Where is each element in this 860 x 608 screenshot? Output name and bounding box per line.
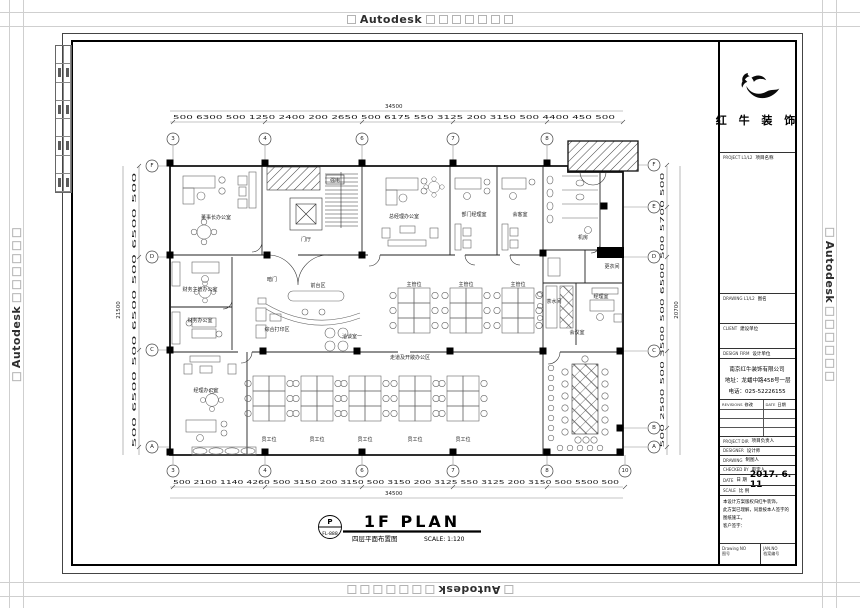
svg-text:B: B [652,425,656,431]
room-label-staff: 员工位 [261,436,276,443]
stamp-number: FL-888 [322,531,338,537]
room-label-lobby: 门厅 [301,236,311,243]
sheet-title: P FL-888 1F PLAN 四层平面布置图 SCALE: 1:120 [319,512,482,543]
room-label-print-zone: 综合打印区 [264,326,289,333]
dim-total-top: 34500 [385,104,403,110]
stair-landing-hatch [267,167,320,190]
room-label-supervisor: 主管位 [510,281,525,288]
drawing-name-space [720,303,795,323]
elevator-x [296,204,316,224]
stair-elevator-core [267,167,358,230]
room-label-finance: 财务办公室 [187,317,212,324]
dims-right: 500 2500 500 3500 500 6500 500 5700 500 [660,171,666,447]
room-label-talk-room: 洽谈室一 [342,333,362,340]
design-firm-row: DESIGN FIRM 设计单位 [720,348,795,358]
svg-text:3: 3 [171,136,175,142]
date-row: DATE 日 期 2017. 6. 11 [720,474,795,485]
title-block: 红 牛 装 饰 PROJECT L1/L2 项目名称 DRAWING L1/L2… [718,42,795,564]
room-label-meeting: 会议室 [569,329,584,336]
dim-total-left: 21500 [116,301,122,319]
svg-text:D: D [652,254,656,260]
designer-row: DESIGNER 设计师 [720,446,795,456]
room-label-supervisor: 主管位 [406,281,421,288]
room-label-manager2: 经理室 [593,293,608,300]
scale-row: SCALE 比 例 [720,485,795,495]
room-label-staff: 员工位 [455,436,470,443]
svg-text:F: F [652,162,655,168]
project-name-space [720,162,795,293]
company-name: 南京红牛装饰有限公司 [730,364,785,372]
room-label-staff: 员工位 [407,436,422,443]
door-arcs [223,172,606,364]
plan-title: 1F PLAN [364,512,460,531]
room-label-chairman: 董事长办公室 [201,214,231,221]
room-label-finance-mgr: 财务主管办公室 [182,286,217,293]
client-row: CLIENT 建设单位 [720,323,795,333]
svg-text:3: 3 [171,468,175,474]
plan-scale: SCALE: 1:120 [424,536,465,543]
room-label-hidden-door: 暗门 [267,276,277,283]
room-label-manager: 经理办公室 [193,387,218,394]
stamp-letter: P [327,518,332,526]
svg-text:7: 7 [451,136,455,142]
structural-columns [167,160,625,456]
company-info: 南京红牛装饰有限公司 地址：龙蟠中路458号一层 电话：025-52226155 [720,358,795,399]
svg-text:C: C [652,348,656,354]
svg-text:10: 10 [622,468,629,474]
room-label-front-desk: 前台区 [310,282,325,289]
redbull-logo-icon [735,66,781,106]
revisions-table: REVISIONS修改 DATE日期 [720,399,795,436]
dim-total-bottom: 34500 [385,491,403,497]
room-label-corridor: 走道及开敞办公区 [390,354,430,361]
cad-sheet-page: Autodesk Autodesk Autodesk Autodesk [0,0,860,608]
company-address: 地址：龙蟠中路458号一层 [725,375,791,383]
svg-text:A: A [652,444,656,450]
drawing-name-row: DRAWING L1/L2 图名 [720,293,795,303]
dims-top: 500 6300 500 1250 2400 200 2650 500 6175… [173,115,616,121]
svg-text:E: E [652,204,656,210]
room-label-gm: 总经理办公室 [389,213,419,220]
svg-text:F: F [150,163,153,169]
project-dir-row: PROJECT DIR 项目负责人 [720,436,795,446]
room-label-power: 强电 [330,177,340,184]
svg-text:6: 6 [360,468,364,474]
svg-text:8: 8 [545,468,549,474]
room-label-supervisor: 主管位 [458,281,473,288]
svg-text:4: 4 [263,136,267,142]
room-label-pantry: 茶水间 [546,298,561,305]
svg-text:A: A [150,444,154,450]
room-label-guest: 会客室 [512,211,527,218]
dims-left: 500 6500 500 6500 500 6500 500 [132,171,138,447]
locker-wall-block [597,247,624,258]
client-space [720,333,795,348]
archive-no-cell: JAN.NO 档案编号 [761,544,795,564]
svg-text:D: D [150,254,154,260]
titleblock-footer: Drawing NO 图号 JAN.NO 档案编号 [720,543,795,564]
room-label-staff: 员工位 [309,436,324,443]
svg-text:8: 8 [545,136,549,142]
svg-text:4: 4 [263,468,267,474]
company-logo-area: 红 牛 装 饰 [720,42,795,152]
brand-name: 红 牛 装 饰 [716,112,800,128]
company-phone: 电话：025-52226155 [729,386,786,394]
svg-text:C: C [150,347,154,353]
notes-block: 本设计方案版权归红牛装饰， 此方案已理解，同意按本人签字的图纸施工。 客户签字： [720,495,795,543]
drafter-row: DRAWING 制图人 [720,455,795,465]
room-label-server: 机房 [578,234,588,241]
dim-total-right: 20700 [674,301,680,319]
svg-text:6: 6 [360,136,364,142]
dims-bottom: 500 2100 1140 4260 500 3150 200 3150 500… [173,480,620,486]
svg-text:7: 7 [451,468,455,474]
room-label-dept-mgr: 部门经理室 [461,211,486,218]
room-labels: 董事长办公室 财务主管办公室 财务办公室 经理办公室 总经理办公室 部门经理室 … [182,177,619,443]
room-label-staff: 员工位 [357,436,372,443]
project-name-row: PROJECT L1/L2 项目名称 [720,152,795,162]
room-label-locker: 更衣间 [604,263,619,270]
plan-subtitle: 四层平面布置图 [352,534,398,543]
drawing-no-cell: Drawing NO 图号 [720,544,761,564]
entrance-canopy-hatch [568,141,638,171]
